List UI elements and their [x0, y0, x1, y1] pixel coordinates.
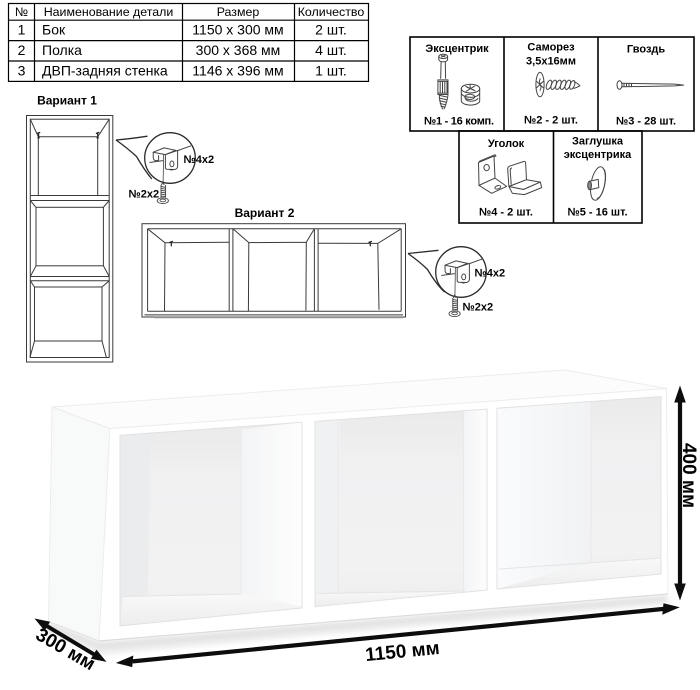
- svg-text:Вариант 2: Вариант 2: [235, 206, 295, 220]
- svg-text:№3 - 28 шт.: №3 - 28 шт.: [616, 116, 676, 128]
- svg-text:№: №: [15, 5, 28, 19]
- svg-text:Размер: Размер: [217, 5, 260, 19]
- svg-text:№4х2: №4х2: [475, 268, 506, 280]
- svg-text:1 шт.: 1 шт.: [315, 63, 347, 79]
- svg-text:Эксцентрик: Эксцентрик: [425, 43, 489, 55]
- svg-text:№2х2: №2х2: [463, 302, 494, 314]
- svg-text:1146 x 396 мм: 1146 x 396 мм: [192, 63, 283, 79]
- svg-text:ДВП-задняя стенка: ДВП-задняя стенка: [42, 63, 168, 79]
- svg-text:2 шт.: 2 шт.: [315, 22, 347, 38]
- svg-text:Заглушка: Заглушка: [572, 136, 624, 148]
- svg-text:4 шт.: 4 шт.: [315, 42, 347, 58]
- svg-text:№5 - 16 шт.: №5 - 16 шт.: [567, 207, 627, 219]
- svg-text:3,5х16мм: 3,5х16мм: [526, 56, 576, 68]
- svg-text:2: 2: [18, 42, 26, 58]
- svg-text:1150 x 300 мм: 1150 x 300 мм: [192, 22, 283, 38]
- svg-text:Гвоздь: Гвоздь: [627, 44, 666, 56]
- svg-text:Количество: Количество: [298, 5, 365, 19]
- svg-text:Бок: Бок: [42, 22, 66, 38]
- svg-text:№1 - 16 комп.: №1 - 16 комп.: [424, 115, 494, 127]
- svg-text:400 мм: 400 мм: [678, 443, 699, 508]
- svg-text:№2х2: №2х2: [129, 189, 160, 201]
- svg-text:1150 мм: 1150 мм: [364, 638, 440, 666]
- svg-text:300 x 368 мм: 300 x 368 мм: [196, 42, 281, 58]
- svg-text:№2 - 2 шт.: №2 - 2 шт.: [524, 115, 578, 127]
- svg-text:Уголок: Уголок: [488, 138, 525, 150]
- svg-text:Вариант 1: Вариант 1: [37, 94, 97, 108]
- svg-text:3: 3: [18, 63, 26, 79]
- svg-text:Наименование детали: Наименование детали: [44, 5, 174, 19]
- svg-text:№4 - 2 шт.: №4 - 2 шт.: [479, 207, 533, 219]
- svg-text:Саморез: Саморез: [527, 42, 575, 54]
- svg-text:1: 1: [18, 22, 26, 38]
- svg-text:эксцентрика: эксцентрика: [564, 149, 632, 161]
- svg-text:Полка: Полка: [42, 42, 82, 58]
- svg-text:№4х2: №4х2: [184, 154, 215, 166]
